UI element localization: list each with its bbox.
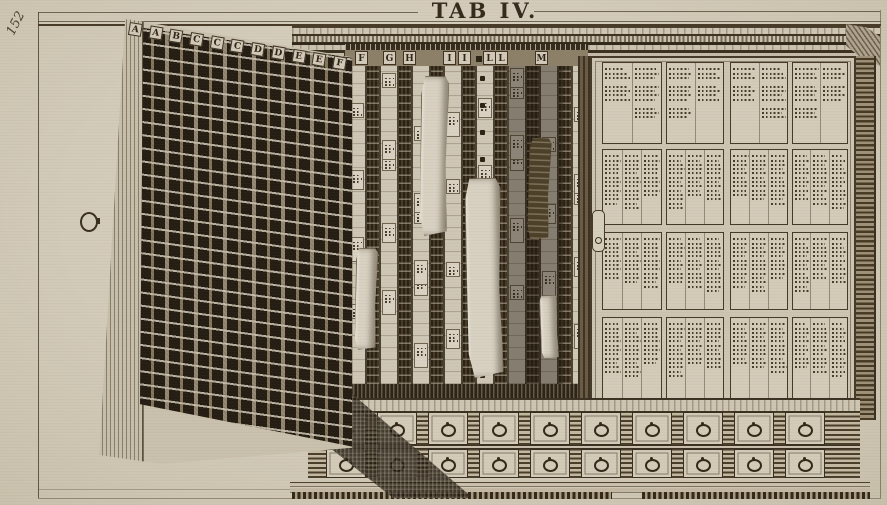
label-panel (602, 149, 662, 225)
compartment-base-band (345, 384, 588, 398)
ring-pull-icon (747, 459, 762, 472)
door-stile (94, 14, 144, 464)
column-letter-plate: I (458, 51, 471, 65)
specimen-label (382, 140, 396, 160)
plinth-shadow-band (642, 492, 870, 499)
ring-pull-icon (645, 459, 660, 472)
door-letter-plate: B (169, 29, 184, 44)
label-panel (602, 232, 662, 310)
specimen-sheet (354, 248, 379, 351)
specimen-sheet (526, 138, 552, 241)
ring-pull-icon (798, 424, 813, 437)
ring-pull-icon (696, 424, 711, 437)
door-letter-plate: F (332, 55, 347, 70)
cabinet-right-side (854, 56, 876, 420)
drawer (683, 449, 723, 478)
door-letter-plate: E (312, 52, 327, 67)
column-letter-plate: H (403, 51, 416, 65)
label-panel (666, 62, 724, 144)
drawer (581, 412, 621, 445)
specimen-label (446, 179, 460, 194)
ring-pull-icon (594, 424, 609, 437)
label-panel (730, 232, 788, 310)
label-panel (792, 62, 848, 144)
drawer (683, 412, 723, 445)
label-panel (602, 317, 662, 403)
specimen-label (446, 329, 460, 349)
ring-pull-icon (441, 424, 456, 437)
drawer (530, 412, 570, 445)
ground-line-left (38, 489, 290, 490)
door-letter-plate: A (128, 22, 143, 37)
drawer (632, 449, 672, 478)
specimen-label (446, 112, 460, 137)
label-panel (730, 317, 788, 403)
open-left-door: AABCCCDDEEF (94, 14, 354, 464)
column-letter-plate: I (443, 51, 456, 65)
label-panel (730, 149, 788, 225)
title-rule-left (38, 12, 418, 13)
column-letter-plate: G (383, 51, 396, 65)
specimen-sheet (539, 295, 559, 360)
ring-handle-icon (80, 212, 98, 232)
specimen-label (382, 223, 396, 243)
title-rule-right (534, 11, 880, 12)
specimen-sheet (464, 178, 503, 379)
specimen-label (414, 343, 428, 368)
door-letter-plate: D (271, 45, 286, 60)
rack-strip (379, 66, 399, 384)
drawer (734, 449, 774, 478)
ring-pull-icon (492, 424, 507, 437)
ring-pull-icon (594, 459, 609, 472)
drawer (428, 412, 468, 445)
drawer (785, 412, 825, 445)
specimen-sheet (419, 76, 450, 236)
column-letter-plate: F (355, 51, 368, 65)
drawer (785, 449, 825, 478)
rack-divider (399, 66, 411, 384)
door-letter-plate: C (210, 35, 225, 50)
header-molding (345, 44, 588, 50)
engraving-plate: TAB IV. 152 FGHIILLM AABCCCDDEEF (0, 0, 887, 505)
label-panel (792, 149, 848, 225)
specimen-label (414, 260, 428, 285)
door-letter-plate: D (250, 42, 265, 57)
ring-pull-icon (543, 424, 558, 437)
column-letter-labels: FGHIILLM (345, 44, 588, 68)
door-letter-plate: C (189, 32, 204, 47)
drawer (581, 449, 621, 478)
column-letter-plate: M (535, 51, 548, 65)
border-rule-right (880, 10, 881, 498)
door-letter-plate: A (148, 25, 163, 40)
drawer (632, 412, 672, 445)
ring-pull-icon (696, 459, 711, 472)
ring-pull-icon (798, 459, 813, 472)
page-number: 152 (0, 2, 32, 44)
label-panel (602, 62, 662, 144)
label-panel (666, 317, 724, 403)
right-door-panel (590, 56, 856, 410)
label-panel (792, 317, 848, 403)
drawer-top-rail (308, 398, 860, 412)
specimen-label (446, 262, 460, 277)
label-panel (666, 149, 724, 225)
door-lattice-face (140, 14, 354, 464)
ring-pull-icon (492, 459, 507, 472)
ring-pull-icon (441, 459, 456, 472)
ring-pull-icon (543, 459, 558, 472)
specimen-label (478, 98, 492, 118)
specimen-label (382, 73, 396, 88)
column-letter-plate: L (495, 51, 508, 65)
border-rule-left (38, 12, 39, 498)
ring-pull-icon (747, 424, 762, 437)
drawer (530, 449, 570, 478)
label-panel (730, 62, 788, 144)
label-panel (792, 232, 848, 310)
drawer (479, 412, 519, 445)
drawer (734, 412, 774, 445)
specimen-label (382, 290, 396, 315)
label-panel (666, 232, 724, 310)
label-panel-grid (592, 58, 854, 408)
drawer (479, 449, 519, 478)
door-letter-plate: E (291, 49, 306, 64)
door-letter-plate: C (230, 39, 245, 54)
keyhole-icon (592, 210, 605, 252)
ring-pull-icon (645, 424, 660, 437)
plate-title: TAB IV. (415, 0, 555, 23)
